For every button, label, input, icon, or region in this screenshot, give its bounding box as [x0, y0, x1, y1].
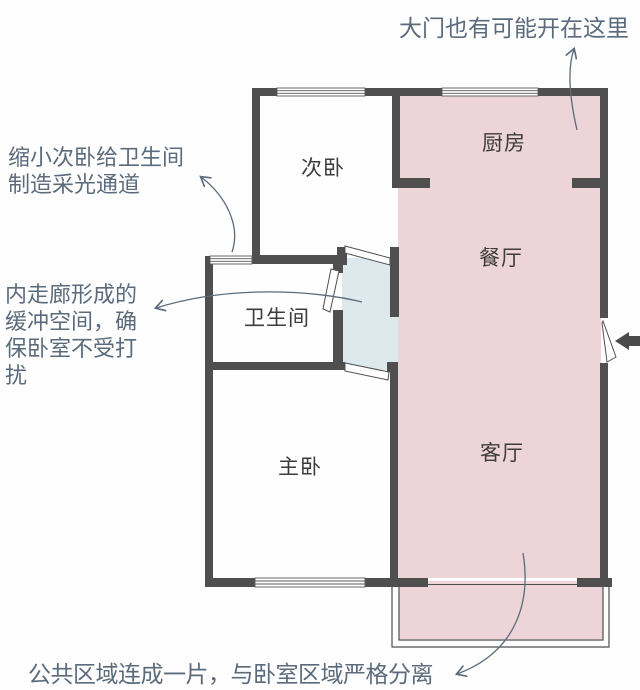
door-leaf-entry	[602, 321, 616, 362]
wall-kitchen-stub-right	[572, 178, 607, 188]
wall-bathroom-right-b	[333, 310, 343, 363]
arrow-lightchannel-icon	[201, 177, 235, 252]
public-zone-fill	[398, 96, 603, 639]
annotation-entry-alt: 大门也有可能开在这里	[399, 9, 629, 43]
room-label-dining: 餐厅	[479, 242, 523, 272]
wall-bottom-a	[205, 578, 255, 587]
window-master-bedroom	[255, 578, 365, 587]
wall-right-upper	[600, 88, 608, 318]
wall-right-lower	[600, 363, 608, 587]
wall-corridor-dining	[390, 247, 399, 317]
corridor-lightshaft-fill	[342, 258, 398, 370]
annotation-light-channel-line1: 缩小次卧给卫生间	[8, 144, 184, 171]
annotation-light-channel-line2: 制造采光通道	[8, 171, 184, 198]
room-label-kitchen: 厨房	[482, 127, 526, 157]
room-label-secondary-bedroom: 次卧	[301, 152, 345, 182]
annotation-corridor-buffer-line2: 缓冲空间，确	[5, 308, 137, 335]
wall-bathroom-top	[252, 255, 340, 264]
room-label-bathroom: 卫生间	[244, 302, 310, 332]
room-label-master-bedroom: 主卧	[278, 451, 322, 481]
annotation-public-zone: 公共区域连成一片，与卧室区域严格分离	[28, 655, 433, 689]
wall-kitchen-stub-left	[398, 178, 430, 188]
door-leaf-bathroom	[323, 269, 339, 312]
floorplan-diagram: 次卧 厨房 餐厅 卫生间 主卧 客厅 大门也有可能开在这里 缩小次卧给卫生间 制…	[0, 0, 640, 690]
wall-bottom-b	[365, 578, 428, 587]
entry-arrow-icon	[615, 332, 640, 350]
wall-bottom-c	[577, 578, 612, 587]
room-label-living: 客厅	[480, 437, 524, 467]
wall-master-top	[205, 362, 345, 370]
annotation-light-channel: 缩小次卧给卫生间 制造采光通道	[8, 144, 184, 198]
wall-bedroom-kitchen-divider	[392, 88, 400, 188]
annotation-corridor-buffer-line4: 扰	[5, 362, 137, 389]
window-kitchen	[442, 88, 538, 96]
wall-master-right	[390, 370, 398, 578]
wall-secondary-bedroom-left	[252, 88, 260, 264]
annotation-corridor-buffer-line1: 内走廊形成的	[5, 281, 137, 308]
window-secondary-bedroom	[277, 88, 365, 96]
annotation-corridor-buffer-line3: 保卧室不受打	[5, 335, 137, 362]
window-bathroom-lightchannel	[210, 256, 252, 264]
annotation-corridor-buffer: 内走廊形成的 缓冲空间，确 保卧室不受打 扰	[5, 281, 137, 389]
wall-left	[205, 256, 213, 587]
